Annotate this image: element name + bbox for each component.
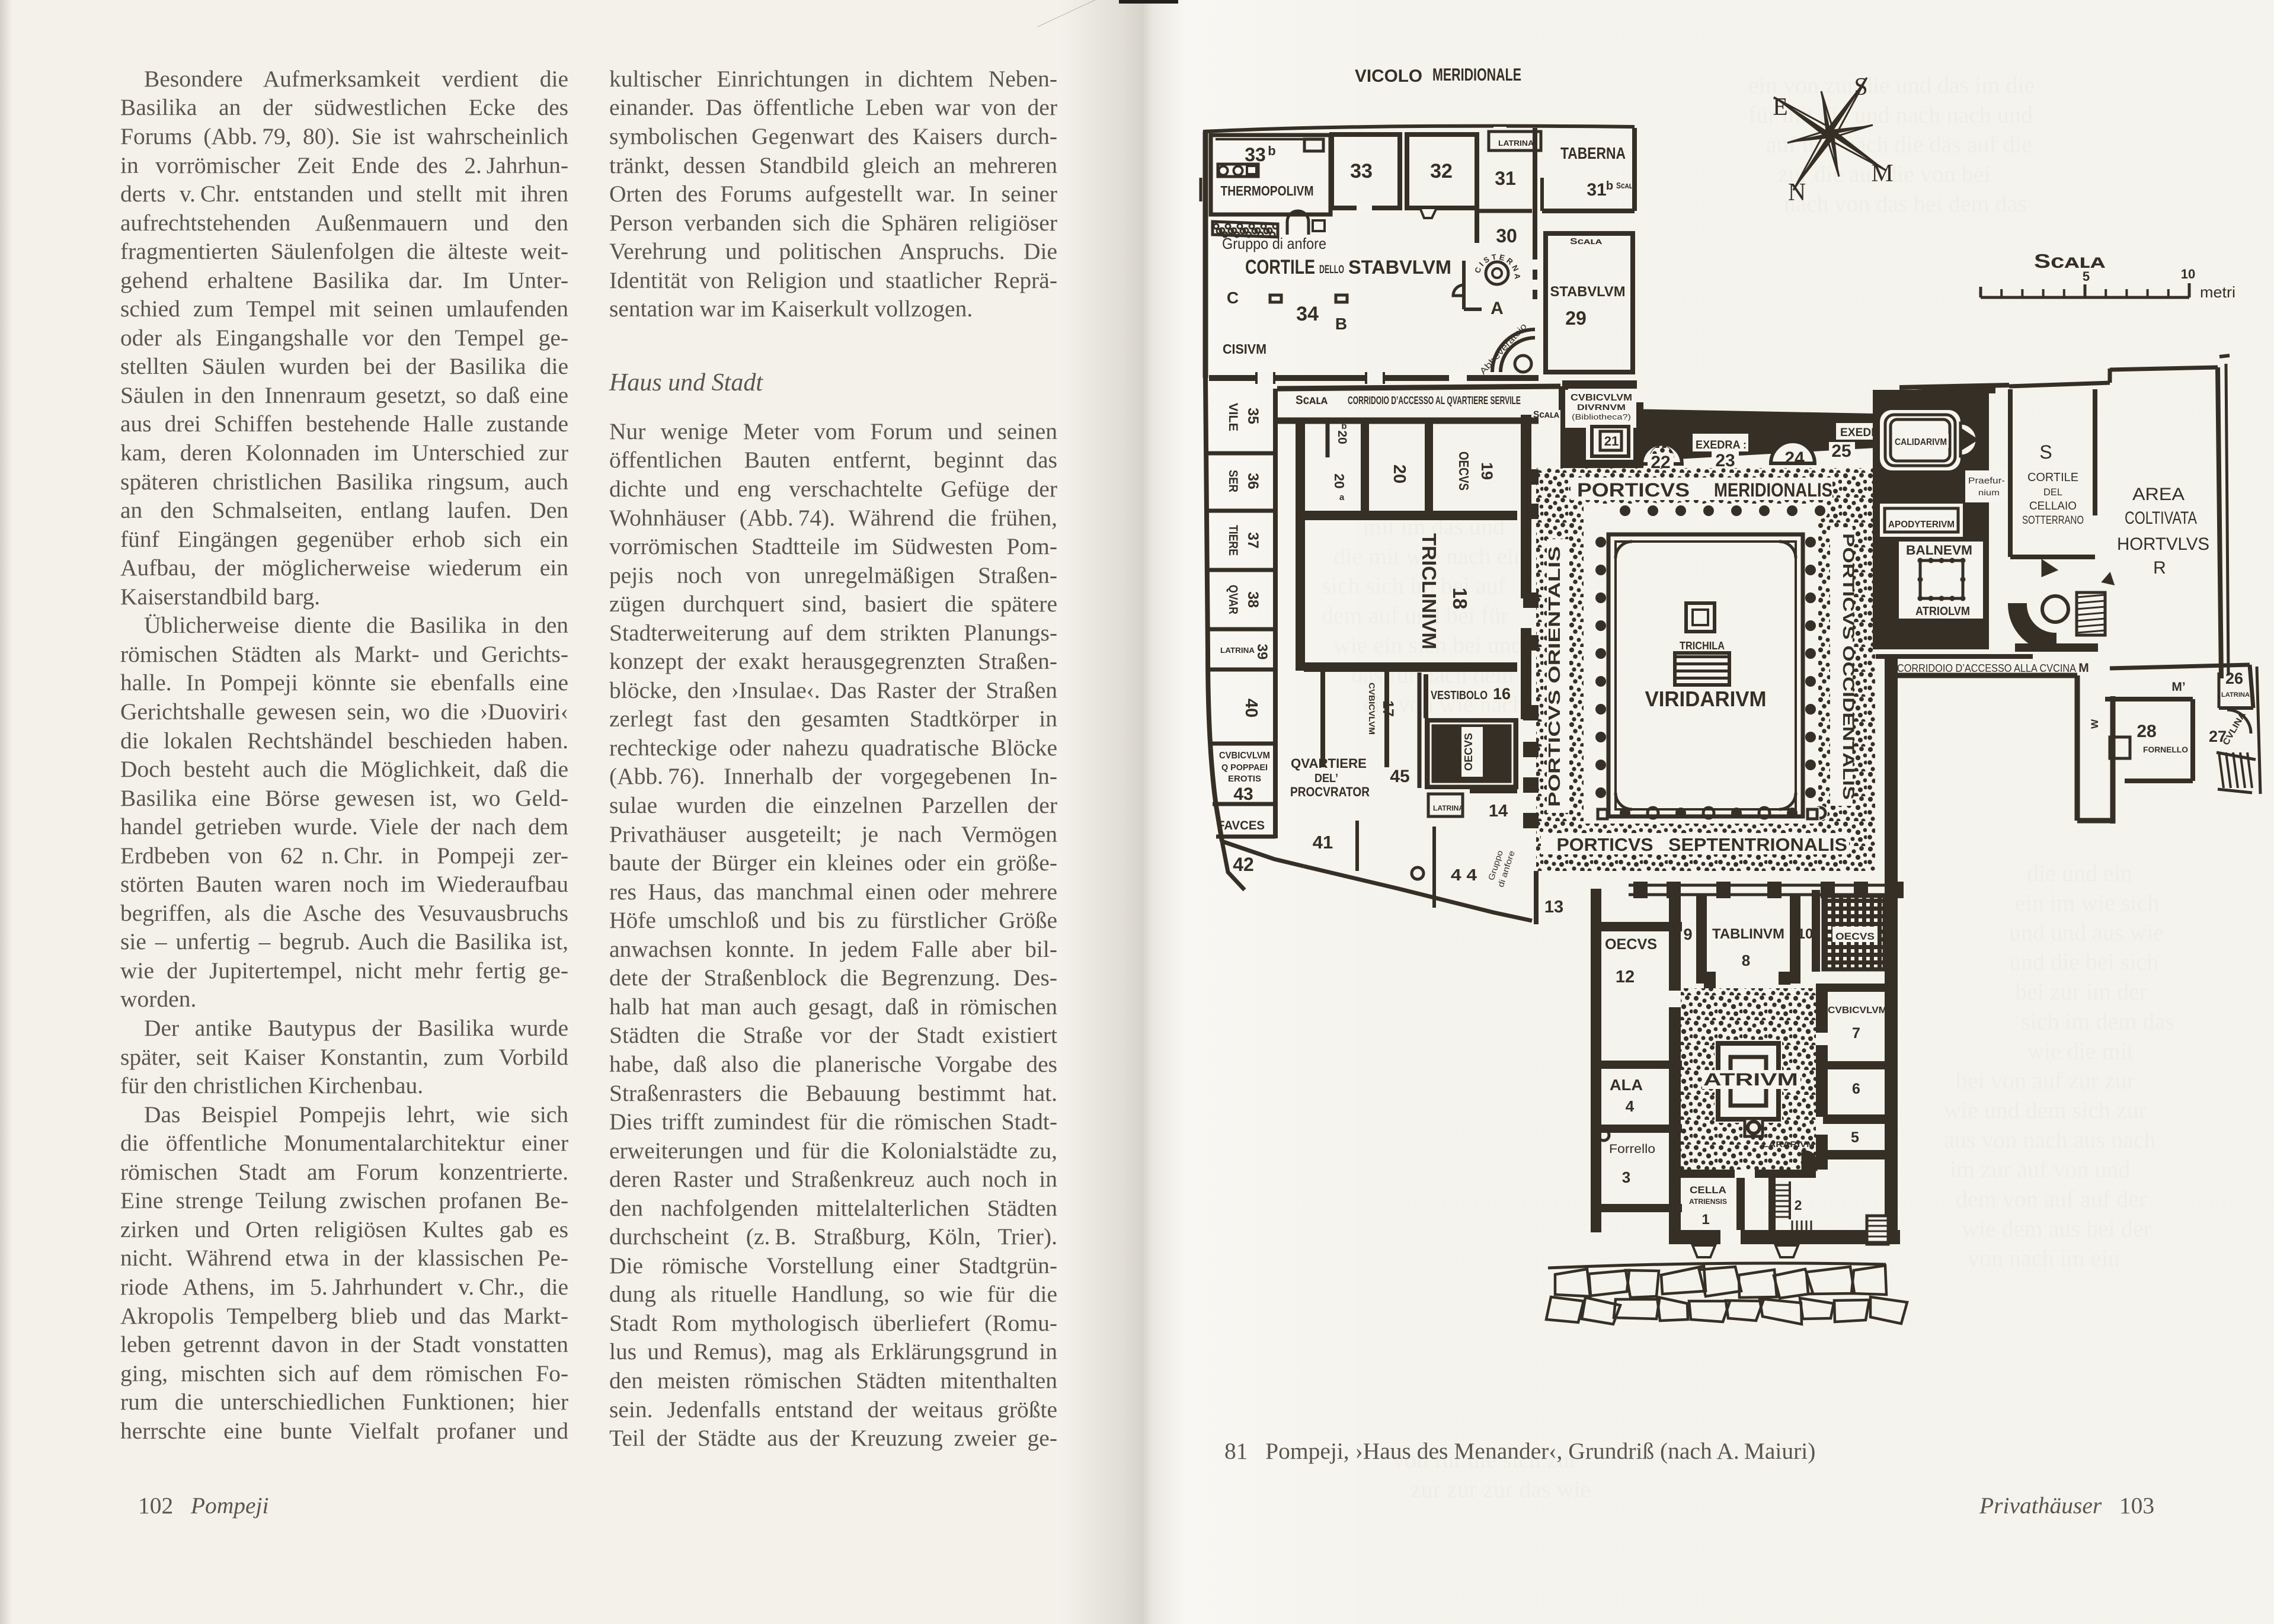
svg-text:CVBICVLVM: CVBICVLVM bbox=[1219, 751, 1270, 761]
svg-text:23: 23 bbox=[1715, 451, 1735, 470]
svg-text:OECVS: OECVS bbox=[1456, 451, 1472, 491]
svg-text:33: 33 bbox=[1350, 160, 1373, 182]
svg-text:CALIDARIVM: CALIDARIVM bbox=[1895, 437, 1947, 447]
svg-text:VICOLO: VICOLO bbox=[1355, 66, 1422, 86]
svg-text:3: 3 bbox=[1622, 1168, 1630, 1186]
svg-text:18: 18 bbox=[1449, 588, 1471, 610]
svg-text:(Bibliotheca?): (Bibliotheca?) bbox=[1572, 412, 1631, 421]
svg-text:EXEDRA :: EXEDRA : bbox=[1696, 439, 1747, 451]
svg-text:TABERNA: TABERNA bbox=[1560, 144, 1626, 162]
svg-text:10: 10 bbox=[1798, 926, 1814, 942]
svg-text:OECVS: OECVS bbox=[1463, 733, 1475, 771]
svg-text:ATRIVM: ATRIVM bbox=[1703, 1070, 1798, 1090]
svg-text:LATRINA: LATRINA bbox=[1498, 139, 1534, 148]
svg-text:9: 9 bbox=[1683, 925, 1692, 943]
svg-text:DEL: DEL bbox=[2043, 486, 2062, 498]
svg-text:OECVS: OECVS bbox=[1835, 931, 1875, 942]
svg-text:35: 35 bbox=[1245, 408, 1261, 424]
svg-text:SEPTENTRIONALIS: SEPTENTRIONALIS bbox=[1668, 834, 1847, 855]
svg-text:N: N bbox=[1788, 179, 1806, 206]
svg-text:PORTICVS: PORTICVS bbox=[1577, 479, 1690, 501]
svg-text:25: 25 bbox=[1831, 441, 1851, 461]
svg-text:36: 36 bbox=[1245, 473, 1261, 489]
svg-text:CISIVM: CISIVM bbox=[1223, 341, 1266, 357]
svg-text:LATRINA: LATRINA bbox=[1220, 646, 1255, 655]
svg-text:10: 10 bbox=[2181, 267, 2195, 281]
svg-text:AREA: AREA bbox=[2132, 485, 2185, 504]
svg-text:5: 5 bbox=[1851, 1129, 1859, 1146]
svg-text:7: 7 bbox=[1852, 1025, 1860, 1042]
svg-text:38: 38 bbox=[1245, 591, 1261, 608]
svg-text:33: 33 bbox=[1245, 144, 1266, 165]
svg-text:R: R bbox=[2153, 558, 2166, 578]
svg-text:DEL’: DEL’ bbox=[1314, 772, 1338, 785]
svg-text:CORRIDOIO D’ACCESSO ALLA CVCIN: CORRIDOIO D’ACCESSO ALLA CVCINA bbox=[1897, 662, 2076, 674]
svg-text:21: 21 bbox=[1604, 434, 1619, 449]
svg-text:4: 4 bbox=[1626, 1097, 1635, 1115]
svg-text:M: M bbox=[1871, 160, 1893, 187]
svg-text:CORTILE: CORTILE bbox=[2027, 471, 2078, 484]
svg-text:32: 32 bbox=[1430, 160, 1453, 182]
svg-text:A: A bbox=[1491, 299, 1504, 318]
svg-text:41: 41 bbox=[1313, 832, 1333, 853]
svg-text:BALNEVM: BALNEVM bbox=[1906, 543, 1972, 558]
svg-text:b: b bbox=[1606, 180, 1613, 193]
svg-text:SOTTERRANO: SOTTERRANO bbox=[2022, 514, 2084, 527]
svg-text:HORTVLVS: HORTVLVS bbox=[2117, 534, 2209, 554]
svg-text:ATRIOLVM: ATRIOLVM bbox=[1915, 605, 1970, 618]
svg-text:19: 19 bbox=[1478, 462, 1496, 480]
svg-text:4 4: 4 4 bbox=[1451, 866, 1477, 884]
svg-text:20: 20 bbox=[1390, 465, 1409, 483]
svg-text:37: 37 bbox=[1245, 532, 1261, 549]
svg-text:STABVLVM: STABVLVM bbox=[1348, 257, 1451, 278]
svg-text:31: 31 bbox=[1495, 168, 1516, 189]
svg-text:42: 42 bbox=[1233, 854, 1254, 875]
svg-text:14: 14 bbox=[1489, 802, 1508, 821]
svg-text:C I S T E R N A: C I S T E R N A bbox=[1473, 252, 1522, 280]
svg-text:24: 24 bbox=[1784, 449, 1805, 468]
svg-text:CORTILE: CORTILE bbox=[1245, 256, 1315, 278]
svg-text:FAVCES: FAVCES bbox=[1217, 819, 1265, 832]
svg-text:CVBICVLVM: CVBICVLVM bbox=[1828, 1005, 1887, 1016]
svg-text:EROTIS: EROTIS bbox=[1228, 774, 1261, 784]
svg-text:2: 2 bbox=[1795, 1197, 1802, 1213]
svg-text:nium: nium bbox=[1978, 488, 2000, 497]
svg-text:Q POPPAEI: Q POPPAEI bbox=[1221, 763, 1268, 773]
svg-text:1: 1 bbox=[1701, 1212, 1709, 1228]
svg-text:16: 16 bbox=[1493, 685, 1511, 703]
svg-text:30: 30 bbox=[1496, 225, 1517, 246]
svg-text:DELLO: DELLO bbox=[1319, 264, 1344, 276]
svg-text:LARARIVM: LARARIVM bbox=[1763, 1139, 1815, 1149]
svg-text:34: 34 bbox=[1296, 303, 1319, 325]
svg-text:VIRIDARIVM: VIRIDARIVM bbox=[1645, 687, 1767, 711]
svg-text:PORTICVS: PORTICVS bbox=[1557, 834, 1653, 855]
svg-text:CVBICVLVM: CVBICVLVM bbox=[1367, 683, 1377, 735]
svg-text:Sᴄᴀʟᴀ: Sᴄᴀʟᴀ bbox=[2034, 250, 2106, 272]
svg-text:MERIDIONALE: MERIDIONALE bbox=[1432, 65, 1521, 85]
svg-text:THERMOPOLIVM: THERMOPOLIVM bbox=[1221, 183, 1314, 198]
svg-text:6: 6 bbox=[1852, 1081, 1860, 1097]
svg-text:LATRINA: LATRINA bbox=[1433, 804, 1464, 812]
svg-text:E: E bbox=[1773, 94, 1788, 121]
svg-text:43: 43 bbox=[1233, 784, 1253, 804]
svg-text:ALA: ALA bbox=[1610, 1076, 1643, 1094]
svg-text:20: 20 bbox=[1332, 473, 1347, 489]
svg-text:TRICHILA: TRICHILA bbox=[1680, 640, 1725, 652]
svg-text:20: 20 bbox=[1335, 430, 1349, 444]
svg-text:Praefur-: Praefur- bbox=[1968, 476, 2005, 486]
svg-text:13: 13 bbox=[1544, 898, 1563, 917]
svg-text:PROCVRATOR: PROCVRATOR bbox=[1290, 784, 1370, 799]
svg-text:DIVRNVM: DIVRNVM bbox=[1577, 402, 1626, 412]
svg-text:M: M bbox=[2078, 661, 2089, 675]
svg-text:LATRINA: LATRINA bbox=[2221, 691, 2250, 699]
svg-text:PORTICVS ORIENTALIS: PORTICVS ORIENTALIS bbox=[1545, 546, 1563, 807]
svg-text:12: 12 bbox=[1616, 968, 1635, 986]
svg-text:b: b bbox=[1341, 421, 1347, 431]
svg-text:31: 31 bbox=[1587, 180, 1606, 200]
svg-text:W: W bbox=[2089, 719, 2100, 729]
svg-text:OECVS: OECVS bbox=[1605, 936, 1657, 953]
svg-text:ATRIENSIS: ATRIENSIS bbox=[1689, 1197, 1727, 1206]
svg-text:Sᴄᴀʟᴀ: Sᴄᴀʟᴀ bbox=[1533, 409, 1559, 420]
svg-text:FORNELLO: FORNELLO bbox=[2143, 745, 2188, 754]
svg-text:CORRIDOIO D’ACCESSO AL QVARTIE: CORRIDOIO D’ACCESSO AL QVARTIERE SERVILE bbox=[1348, 395, 1521, 406]
svg-text:VILE: VILE bbox=[1226, 403, 1240, 431]
svg-text:PORTICVS OCCIDENTALIS: PORTICVS OCCIDENTALIS bbox=[1840, 533, 1857, 800]
svg-text:45: 45 bbox=[1390, 767, 1409, 786]
svg-text:CELLA: CELLA bbox=[1690, 1184, 1726, 1196]
svg-text:S: S bbox=[1854, 73, 1867, 101]
svg-text:COLTIVATA: COLTIVATA bbox=[2125, 508, 2197, 528]
svg-text:TRICLINIVM: TRICLINIVM bbox=[1418, 533, 1440, 649]
svg-text:Forrello: Forrello bbox=[1609, 1142, 1655, 1156]
svg-text:b: b bbox=[1268, 143, 1275, 158]
svg-text:Sᴄᴀʟᴀ: Sᴄᴀʟᴀ bbox=[1570, 236, 1602, 246]
svg-text:29: 29 bbox=[1565, 307, 1587, 329]
svg-text:26: 26 bbox=[2225, 670, 2243, 687]
svg-text:8: 8 bbox=[1742, 952, 1750, 969]
svg-text:40: 40 bbox=[1242, 699, 1261, 717]
svg-text:APODYTERIVM: APODYTERIVM bbox=[1888, 520, 1955, 530]
svg-text:SER: SER bbox=[1226, 470, 1240, 492]
svg-text:a: a bbox=[1339, 492, 1345, 502]
svg-text:QVARTIERE: QVARTIERE bbox=[1291, 756, 1367, 771]
svg-text:17: 17 bbox=[1380, 700, 1396, 717]
svg-text:VESTIBOLO: VESTIBOLO bbox=[1431, 689, 1488, 702]
svg-text:Sᴄᴀʟᴀ: Sᴄᴀʟᴀ bbox=[1296, 393, 1328, 407]
svg-text:Sᴄᴀʟᴀ: Sᴄᴀʟᴀ bbox=[1616, 181, 1636, 191]
svg-text:CVBICVLVM: CVBICVLVM bbox=[1571, 393, 1632, 403]
svg-text:28: 28 bbox=[2137, 722, 2156, 741]
svg-text:Abbeveratoio: Abbeveratoio bbox=[1478, 321, 1529, 376]
svg-text:Gruppo di anfore: Gruppo di anfore bbox=[1222, 235, 1326, 252]
svg-text:TIERE: TIERE bbox=[1226, 525, 1240, 556]
svg-text:39: 39 bbox=[1254, 644, 1270, 660]
svg-text:STABVLVM: STABVLVM bbox=[1550, 284, 1626, 300]
svg-text:TABLINVM: TABLINVM bbox=[1712, 926, 1784, 942]
svg-text:M’: M’ bbox=[2171, 680, 2185, 694]
svg-text:B: B bbox=[1335, 315, 1347, 333]
svg-text:QVAR: QVAR bbox=[1226, 585, 1240, 614]
svg-text:5: 5 bbox=[2083, 269, 2090, 284]
svg-text:MERIDIONALIS: MERIDIONALIS bbox=[1714, 479, 1832, 501]
svg-text:CELLAIO: CELLAIO bbox=[2029, 500, 2077, 512]
svg-text:S: S bbox=[2039, 441, 2052, 463]
svg-text:C: C bbox=[1227, 289, 1239, 307]
svg-text:metri: metri bbox=[2200, 283, 2235, 301]
